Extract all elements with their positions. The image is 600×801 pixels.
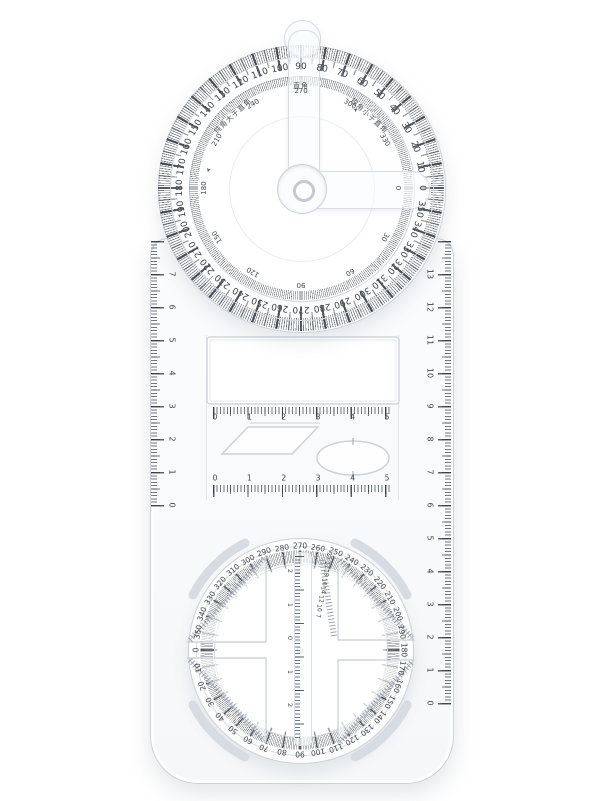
bottom-scale-number: 0 (213, 474, 218, 483)
bottom-scale-number: 4 (350, 474, 355, 483)
dial-center-ruler-number: 0 (286, 636, 294, 640)
circle-size-number: 10 (316, 604, 323, 612)
left-ruler-number: 3 (168, 403, 177, 408)
right-ruler-number: 0 (426, 700, 435, 705)
right-ruler-number: 13 (426, 269, 435, 279)
right-ruler-number: 5 (426, 535, 435, 540)
circle-size-number: 16 (321, 578, 328, 586)
bottom-scale-ticks (213, 485, 390, 497)
circle-size-number: 22 (324, 561, 331, 569)
dial-center-ruler-number: 1 (286, 602, 294, 606)
left-ruler-number: 5 (168, 337, 177, 342)
bottom-scale-number: 3 (316, 474, 321, 483)
left-ruler-number: 1 (168, 469, 177, 474)
right-ruler-number: 4 (426, 568, 435, 573)
dial-degree-label: 270 (293, 542, 307, 551)
right-ruler-number: 11 (426, 335, 435, 345)
circle-size-number: 12 (318, 595, 325, 603)
pivot-hole (293, 180, 315, 202)
dial-center-ruler-cm (295, 556, 304, 740)
inner-disc-degree-label: 180 (200, 181, 208, 194)
protractor-degree-label: 180 (175, 179, 185, 196)
right-ruler-number: 6 (426, 502, 435, 507)
circle-size-number: 19 (322, 569, 329, 577)
protractor-degree-label: 10 (414, 160, 426, 173)
dial-degree-label: 280 (274, 542, 290, 553)
protractor-degree-label: 80 (315, 63, 328, 75)
bottom-scale-number: 1 (247, 474, 252, 483)
left-ruler-number: 2 (168, 436, 177, 441)
product-photo-geometric-ruler: 直角 钝角大于直角 锐角小于直角 ➤ ➤ 0102030405060708090… (0, 0, 600, 801)
inner-disc-degree-label: 90 (297, 281, 306, 289)
left-ruler-number: 7 (168, 271, 177, 276)
top-scale-ticks (213, 407, 390, 419)
circle-size-number: 25 (326, 552, 333, 560)
left-ruler-number: 4 (168, 370, 177, 375)
inner-disc-degree-label: 270 (294, 87, 307, 95)
right-ruler-number: 12 (426, 302, 435, 312)
right-ruler-number: 7 (426, 469, 435, 474)
dial-center-ruler-number: 2 (286, 703, 294, 707)
dial-degree-label: 260 (310, 542, 326, 553)
dial-degree-label: 90 (295, 750, 305, 759)
bottom-scale-number: 5 (385, 474, 390, 483)
bottom-scale-number: 2 (281, 474, 286, 483)
right-ruler-number: 1 (426, 667, 435, 672)
protractor-degree-label: 90 (295, 62, 306, 72)
circle-size-number: 7 (314, 614, 321, 618)
circle-size-number: 14 (319, 587, 326, 595)
inner-disc-degree-label: 0 (394, 186, 402, 190)
protractor-degree-label: 0 (417, 185, 427, 191)
right-ruler-number: 10 (426, 368, 435, 378)
dial-center-ruler-number: 2 (286, 569, 294, 573)
protractor-degree-label: 270 (292, 304, 309, 314)
left-ruler-number: 0 (168, 502, 177, 507)
dial-degree-label: 10 (192, 663, 203, 674)
right-ruler-number: 3 (426, 601, 435, 606)
dial-center-ruler-number: 1 (286, 669, 294, 673)
left-ruler-number: 6 (168, 304, 177, 309)
dial-degree-label: 180 (400, 643, 409, 657)
right-ruler-number: 2 (426, 634, 435, 639)
right-ruler-number: 9 (426, 403, 435, 408)
dial-degree-label: 350 (192, 624, 203, 640)
right-ruler-number: 8 (426, 436, 435, 441)
dial-degree-label: 0 (192, 648, 201, 653)
